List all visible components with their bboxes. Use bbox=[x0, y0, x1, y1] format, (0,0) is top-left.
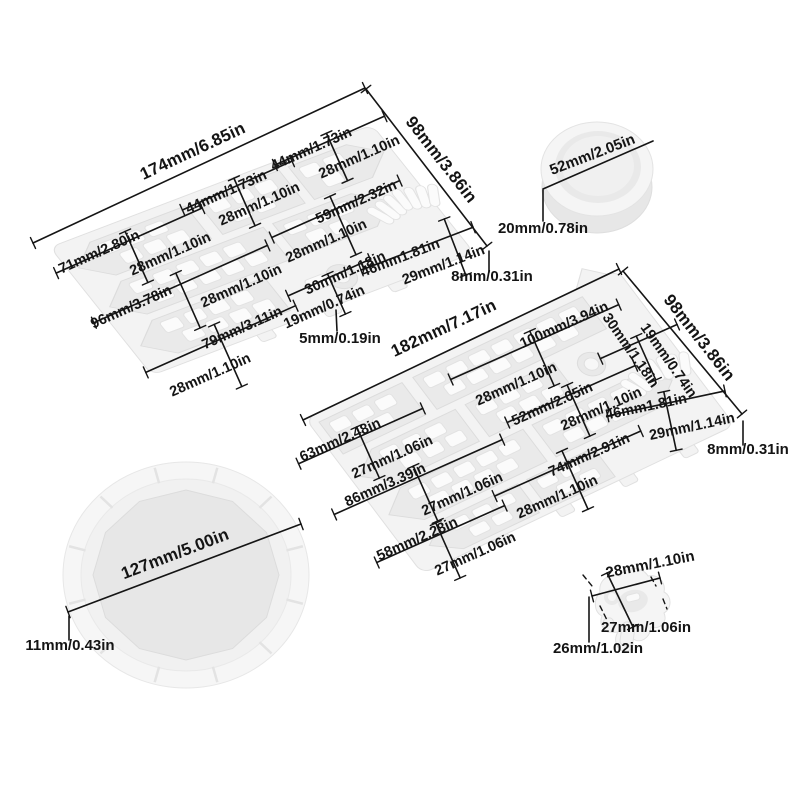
dimension-label: 27mm/1.06in bbox=[601, 619, 691, 636]
dimension-label: 5mm/0.19in bbox=[299, 330, 381, 347]
product-dimension-diagram: 174mm/6.85in98mm/3.86in52mm/2.05in20mm/0… bbox=[0, 0, 800, 800]
coaster-mold bbox=[63, 462, 309, 688]
extension-line bbox=[583, 575, 592, 586]
dimension-label: 8mm/0.31in bbox=[707, 441, 789, 458]
mini-blob-piece-2 bbox=[608, 593, 616, 601]
small-round-mold bbox=[541, 122, 653, 233]
dimension-label: 11mm/0.43in bbox=[25, 637, 114, 654]
dimension-label: 26mm/1.02in bbox=[553, 640, 643, 657]
diagram-canvas: 174mm/6.85in98mm/3.86in52mm/2.05in20mm/0… bbox=[0, 0, 800, 800]
dimension-line bbox=[336, 310, 337, 331]
dimension-label: 20mm/0.78in bbox=[498, 220, 588, 237]
